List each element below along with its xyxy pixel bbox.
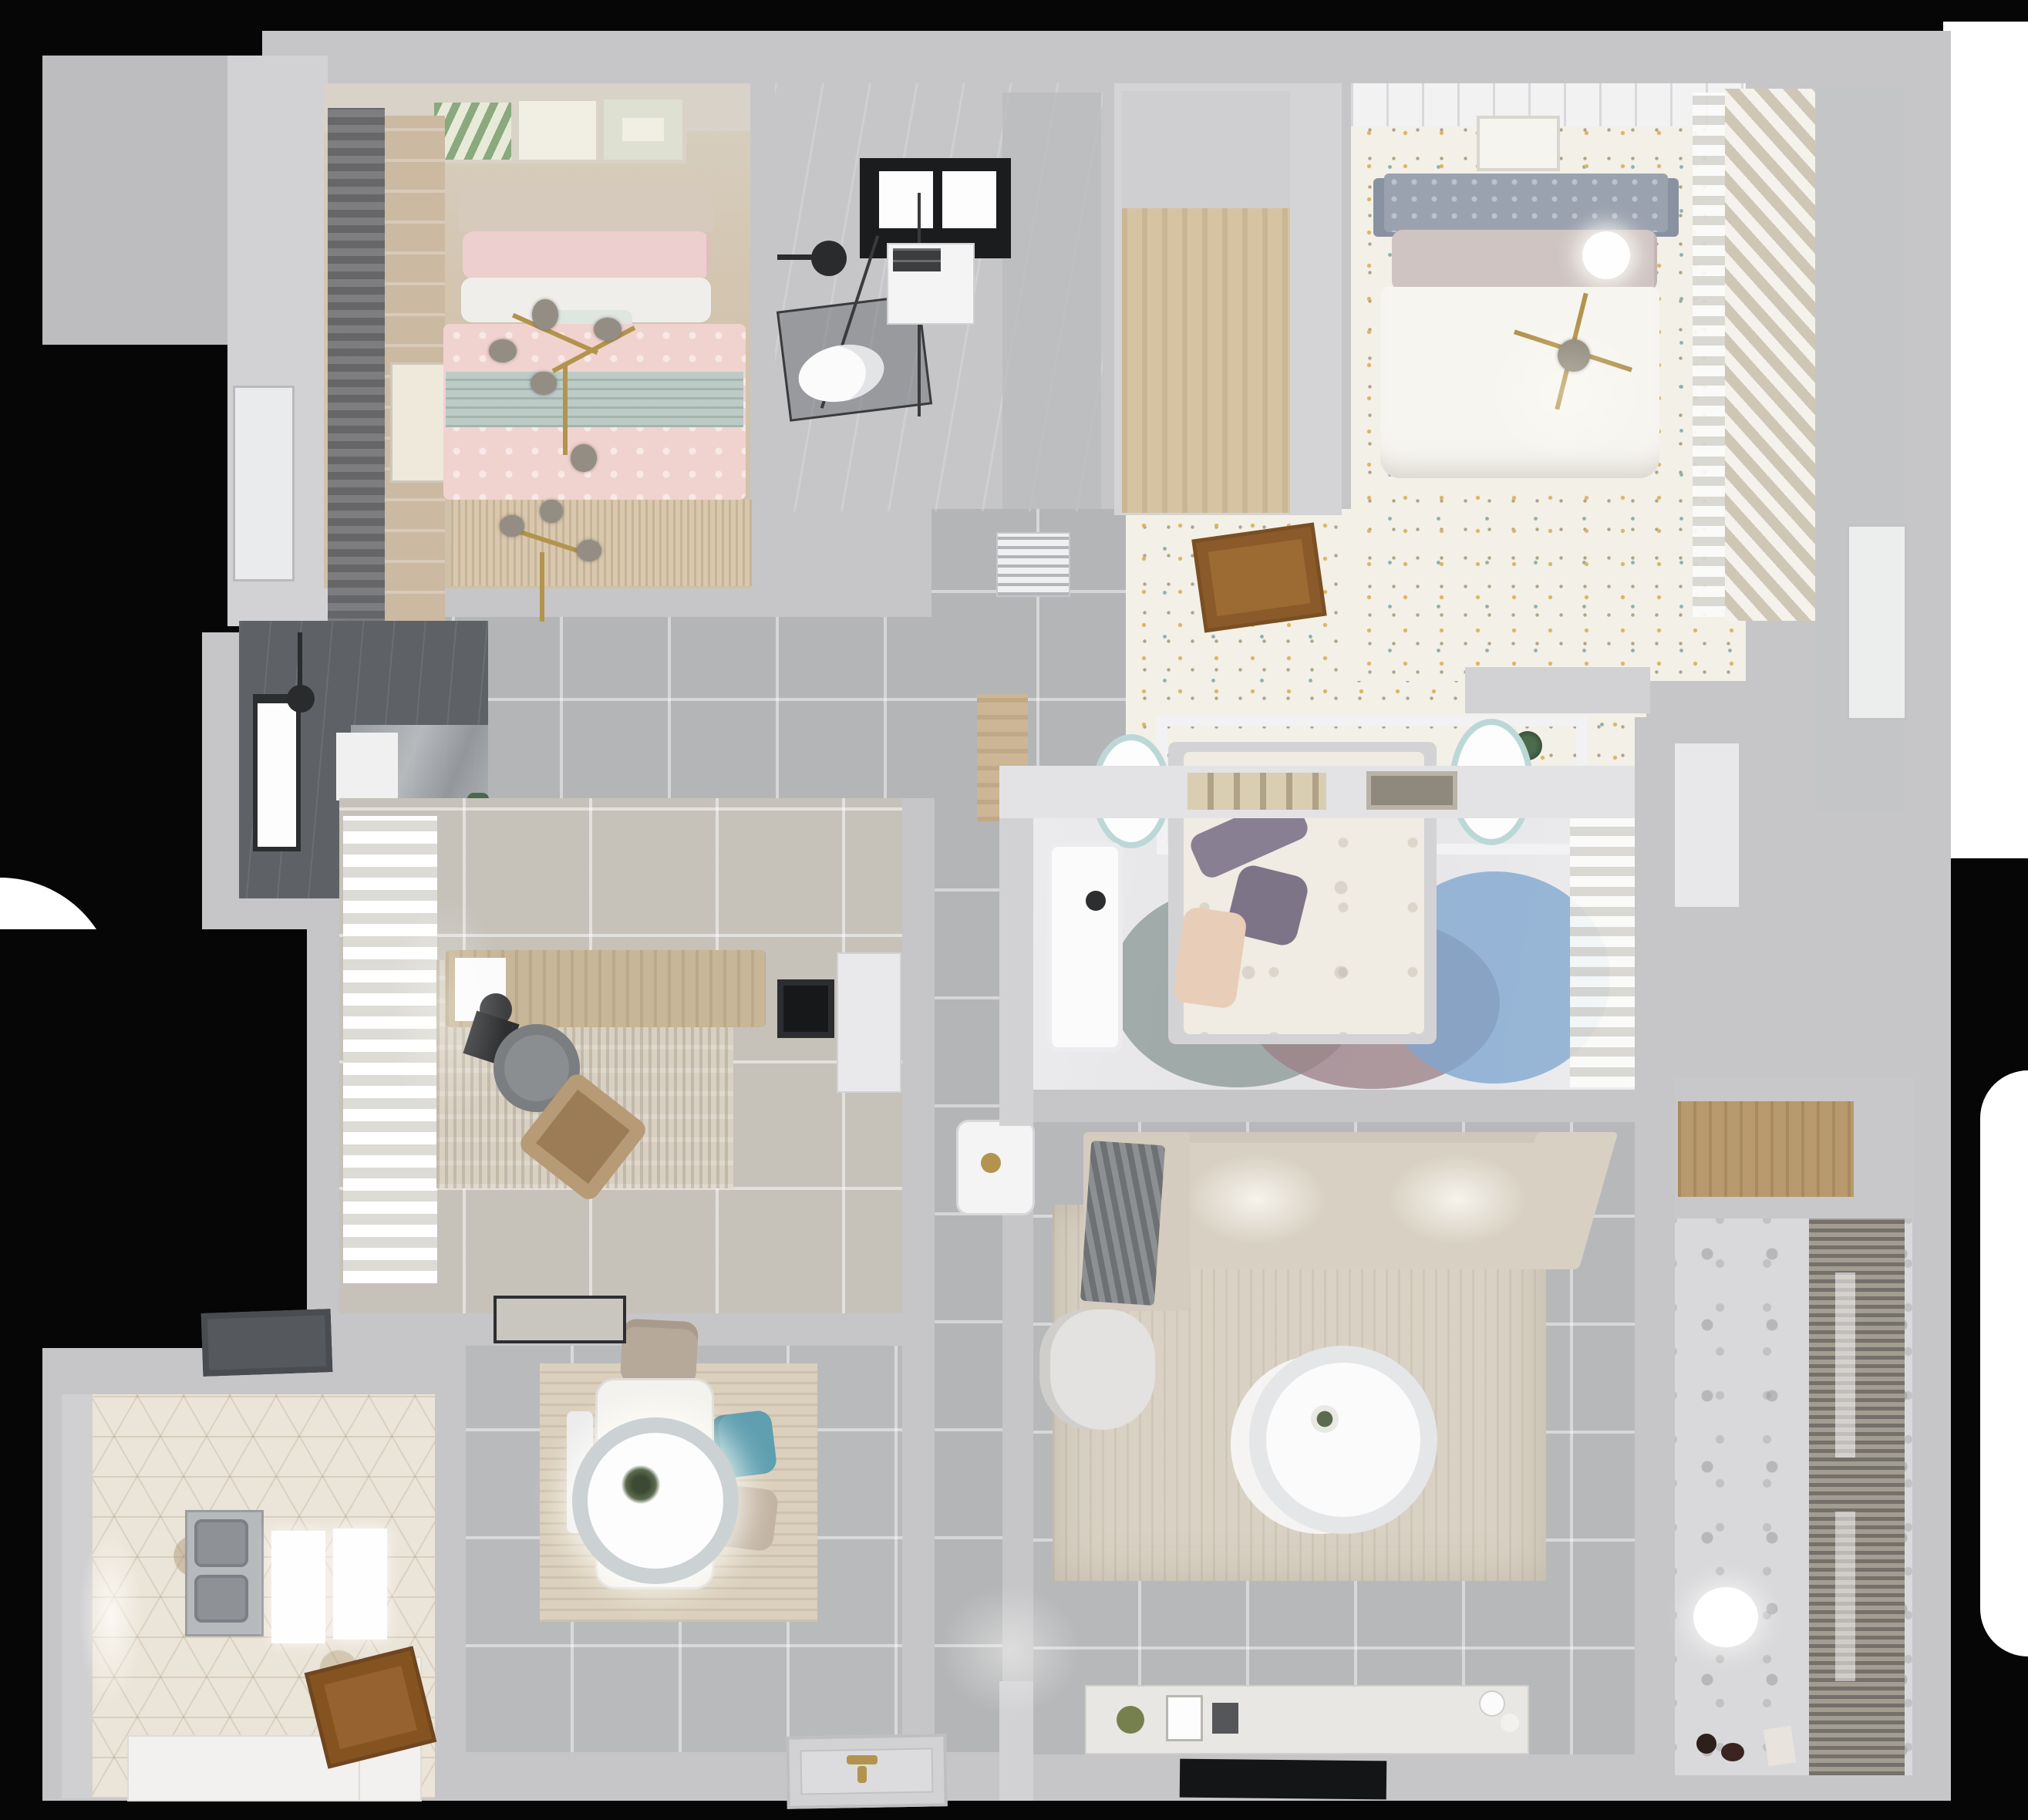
study-doormat — [494, 1296, 626, 1343]
kitchen-white-panel — [271, 1531, 325, 1643]
entry-door-mat — [786, 1734, 948, 1809]
chandelier-bulb — [532, 299, 558, 330]
bedroom1-side-picture — [390, 362, 446, 483]
chandelier-bulb — [571, 444, 597, 472]
storage-upper-cabinet — [1122, 91, 1290, 208]
skylight-pane — [879, 171, 933, 228]
chandelier2-bulb — [500, 515, 524, 537]
dining-chair-top — [620, 1318, 699, 1387]
wall-art-frame-botanical — [600, 96, 686, 163]
shower-room-shelf — [336, 733, 398, 800]
kitchen-window-glow — [65, 1488, 157, 1743]
bathroom2-window-slit — [1835, 1512, 1855, 1681]
vanity-drawers — [893, 248, 941, 271]
ac-vent — [996, 532, 1070, 597]
chandelier2-bulb — [540, 500, 563, 523]
shower-room-head — [287, 685, 315, 713]
outside-white-top-right — [1943, 22, 2028, 858]
console-vase — [1479, 1690, 1505, 1717]
bed1-foot-rug — [451, 500, 752, 586]
bathroom2-toy — [1721, 1743, 1744, 1761]
vestibule-wood-counter — [1678, 1101, 1854, 1197]
storage-wood-floor — [1122, 208, 1290, 513]
bedroom3-desk-hole — [1086, 891, 1106, 911]
bedroom3-sheer-curtain — [1570, 817, 1635, 1087]
bedroom2-light-glow — [1450, 293, 1681, 494]
hall-living-wall-upper — [999, 802, 1033, 1126]
bedroom2-wardrobe — [1724, 89, 1815, 621]
coffee-table — [1249, 1346, 1437, 1534]
chandelier-bulb — [489, 339, 517, 362]
right-white-cabinet — [1674, 743, 1739, 907]
study-light-glow — [362, 848, 532, 1172]
bed2-disc-lamp — [1582, 231, 1630, 279]
shower-room-window — [253, 694, 301, 851]
dining-pendant-plant — [622, 1465, 660, 1504]
kitchen-hood — [201, 1309, 333, 1377]
dining-pendant-lamp — [572, 1417, 739, 1584]
bedroom3-head-shelf-books — [1187, 773, 1326, 810]
kitchen-white-panel — [333, 1528, 387, 1640]
left-wall-door — [233, 386, 295, 581]
chandelier2-bulb — [577, 540, 601, 561]
bedroom1-curtain — [328, 108, 385, 665]
wall-art-frame-text — [515, 97, 600, 163]
entry-mat-gold-handle — [847, 1755, 878, 1764]
side-stool-gold-decor — [981, 1153, 1001, 1173]
chandelier-bulb — [594, 318, 622, 341]
bathroom2-toy — [1696, 1734, 1716, 1754]
tv-panel — [1180, 1759, 1387, 1800]
bedroom2-art-frame — [1477, 116, 1560, 171]
chandelier-bulb — [531, 372, 557, 395]
bedroom2-sheer-curtain — [1693, 93, 1725, 617]
console-frames — [1166, 1695, 1203, 1741]
bathroom2-window-slit — [1835, 1272, 1855, 1458]
console-green-plate — [1117, 1706, 1144, 1734]
hall-light-glow — [910, 1558, 1110, 1743]
corridor-wall-stub — [1465, 667, 1650, 713]
armchair — [1039, 1309, 1155, 1430]
kitchen-sink-basin — [194, 1575, 248, 1623]
chandelier-branch-arm — [563, 362, 568, 455]
console-box — [1212, 1703, 1238, 1734]
bathroom1-floor-light — [1002, 93, 1101, 509]
balcony-door — [1847, 524, 1907, 720]
shower-room-pipe — [298, 632, 302, 688]
tv-console — [1085, 1685, 1529, 1754]
bed1-teal-blanket — [446, 372, 743, 427]
sofa-gray-blanket — [1080, 1141, 1165, 1306]
skylight-pane — [942, 171, 996, 228]
bed2-headboard — [1384, 174, 1668, 232]
kitchen-sink-basin — [194, 1519, 248, 1567]
study-monitor — [777, 979, 834, 1038]
bedroom3-right-wall — [1635, 717, 1675, 1801]
bathroom2-towel — [1764, 1726, 1796, 1767]
bedroom3-head-shelf-box — [1366, 771, 1457, 810]
bathroom2-ceiling-light — [1693, 1587, 1758, 1647]
chandelier2-arm — [540, 552, 544, 622]
sofa-light-glow — [1357, 1134, 1558, 1265]
open-wood-door — [1191, 522, 1326, 632]
console-vase — [1501, 1714, 1519, 1732]
bed3-pillow-peach — [1172, 906, 1248, 1009]
bedroom3-desk — [1047, 842, 1123, 1052]
exterior-platform — [42, 56, 235, 345]
bed1-pillows-pink — [463, 231, 709, 279]
sofa-light-glow — [1157, 1134, 1357, 1265]
floor-plan-canvas — [0, 0, 2028, 1820]
study-side-cabinet — [837, 952, 901, 1093]
bathroom2-roller-blinds — [1809, 1218, 1905, 1775]
outside-white-right — [1980, 1070, 2028, 1657]
rain-shower-head — [811, 241, 847, 276]
bed1-headboard — [459, 184, 713, 231]
entry-mat-gold-handle — [857, 1766, 867, 1783]
coffee-table-tray-plant — [1311, 1405, 1339, 1433]
exterior-cutout — [0, 929, 307, 1348]
